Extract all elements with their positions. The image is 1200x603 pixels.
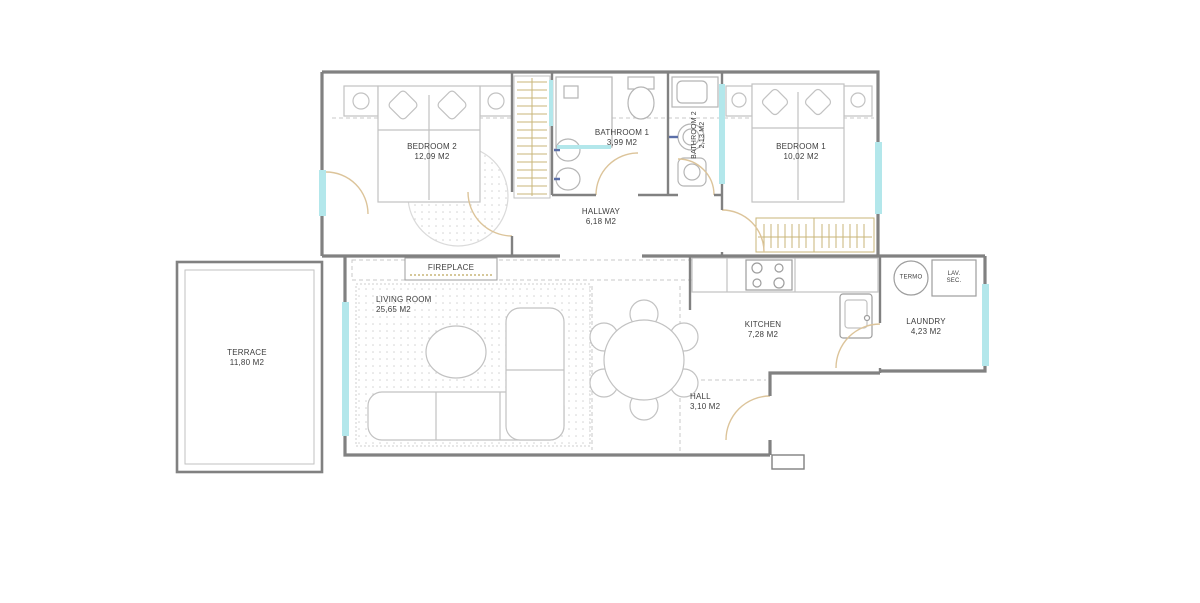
room-name: BEDROOM 1 — [776, 142, 826, 152]
laundry-label: LAUNDRY 4,23 M2 — [906, 317, 946, 337]
sofa-vertical — [506, 308, 564, 440]
lav-sec-label: LAV. SEC. — [947, 271, 962, 285]
room-area: 12,09 M2 — [407, 152, 457, 162]
hallway-label: HALLWAY 6,18 M2 — [582, 207, 620, 227]
lamp — [488, 93, 504, 109]
tap — [865, 316, 870, 321]
floor-plan-page: BEDROOM 2 12,09 M2 BATHROOM 1 3,99 M2 BA… — [0, 0, 1200, 603]
burner — [774, 278, 784, 288]
lamp — [851, 93, 865, 107]
termo-text: TERMO — [900, 275, 923, 282]
bathroom2-label: BATHROOM 2 2,13 M2 — [691, 111, 707, 159]
lamp — [353, 93, 369, 109]
dining-set — [590, 300, 698, 420]
kitchen-fixtures — [692, 258, 878, 338]
fireplace-label: FIREPLACE — [428, 263, 474, 273]
bathroom1-label: BATHROOM 1 3,99 M2 — [595, 128, 649, 148]
window-bedroom1 — [875, 142, 882, 214]
room-name: LAUNDRY — [906, 317, 946, 327]
terrace-label: TERRACE 11,80 M2 — [227, 348, 267, 368]
window-laundry — [982, 284, 989, 366]
toilet — [628, 87, 654, 119]
floorplan-drawing — [0, 0, 1200, 603]
glass-bathroom2 — [719, 84, 725, 184]
room-name: HALLWAY — [582, 207, 620, 217]
room-name: KITCHEN — [745, 320, 782, 330]
window-living-room — [342, 302, 349, 436]
living-room-label: LIVING ROOM 25,65 M2 — [376, 295, 432, 315]
room-name: BEDROOM 2 — [407, 142, 457, 152]
termo-label: TERMO — [900, 275, 923, 282]
fireplace-text: FIREPLACE — [428, 263, 474, 273]
lav-text: LAV. — [947, 271, 962, 278]
room-area: 25,65 M2 — [376, 305, 432, 315]
bedroom2-label: BEDROOM 2 12,09 M2 — [407, 142, 457, 162]
wardrobe-bedroom1 — [756, 218, 874, 252]
coffee-table — [426, 326, 486, 378]
room-area: 11,80 M2 — [227, 358, 267, 368]
room-name: HALL — [690, 392, 720, 402]
bedroom2-furniture — [344, 86, 512, 246]
window-bathroom1 — [549, 80, 553, 126]
room-area: 6,18 M2 — [582, 217, 620, 227]
closet-vertical — [514, 76, 550, 198]
room-area: 3,10 M2 — [690, 402, 720, 412]
room-area: 4,23 M2 — [906, 327, 946, 337]
hall-label: HALL 3,10 M2 — [690, 392, 720, 412]
room-area: 2,13 M2 — [699, 111, 707, 159]
window-bedroom2 — [319, 170, 326, 216]
lamp — [732, 93, 746, 107]
bedroom1-label: BEDROOM 1 10,02 M2 — [776, 142, 826, 162]
room-name: TERRACE — [227, 348, 267, 358]
room-name: BATHROOM 2 — [691, 111, 699, 159]
kitchen-label: KITCHEN 7,28 M2 — [745, 320, 782, 340]
room-area: 7,28 M2 — [745, 330, 782, 340]
room-area: 3,99 M2 — [595, 138, 649, 148]
door-bedroom2-terrace — [326, 172, 368, 214]
dining-table — [604, 320, 684, 400]
burner — [775, 264, 783, 272]
room-area: 10,02 M2 — [776, 152, 826, 162]
door-bathroom1 — [596, 153, 638, 195]
door-entrance — [726, 396, 770, 440]
burner — [753, 279, 761, 287]
vanity-basin — [677, 81, 707, 103]
sec-text: SEC. — [947, 278, 962, 285]
shower-soap — [564, 86, 578, 98]
room-name: BATHROOM 1 — [595, 128, 649, 138]
room-name: LIVING ROOM — [376, 295, 432, 305]
burner — [752, 263, 762, 273]
